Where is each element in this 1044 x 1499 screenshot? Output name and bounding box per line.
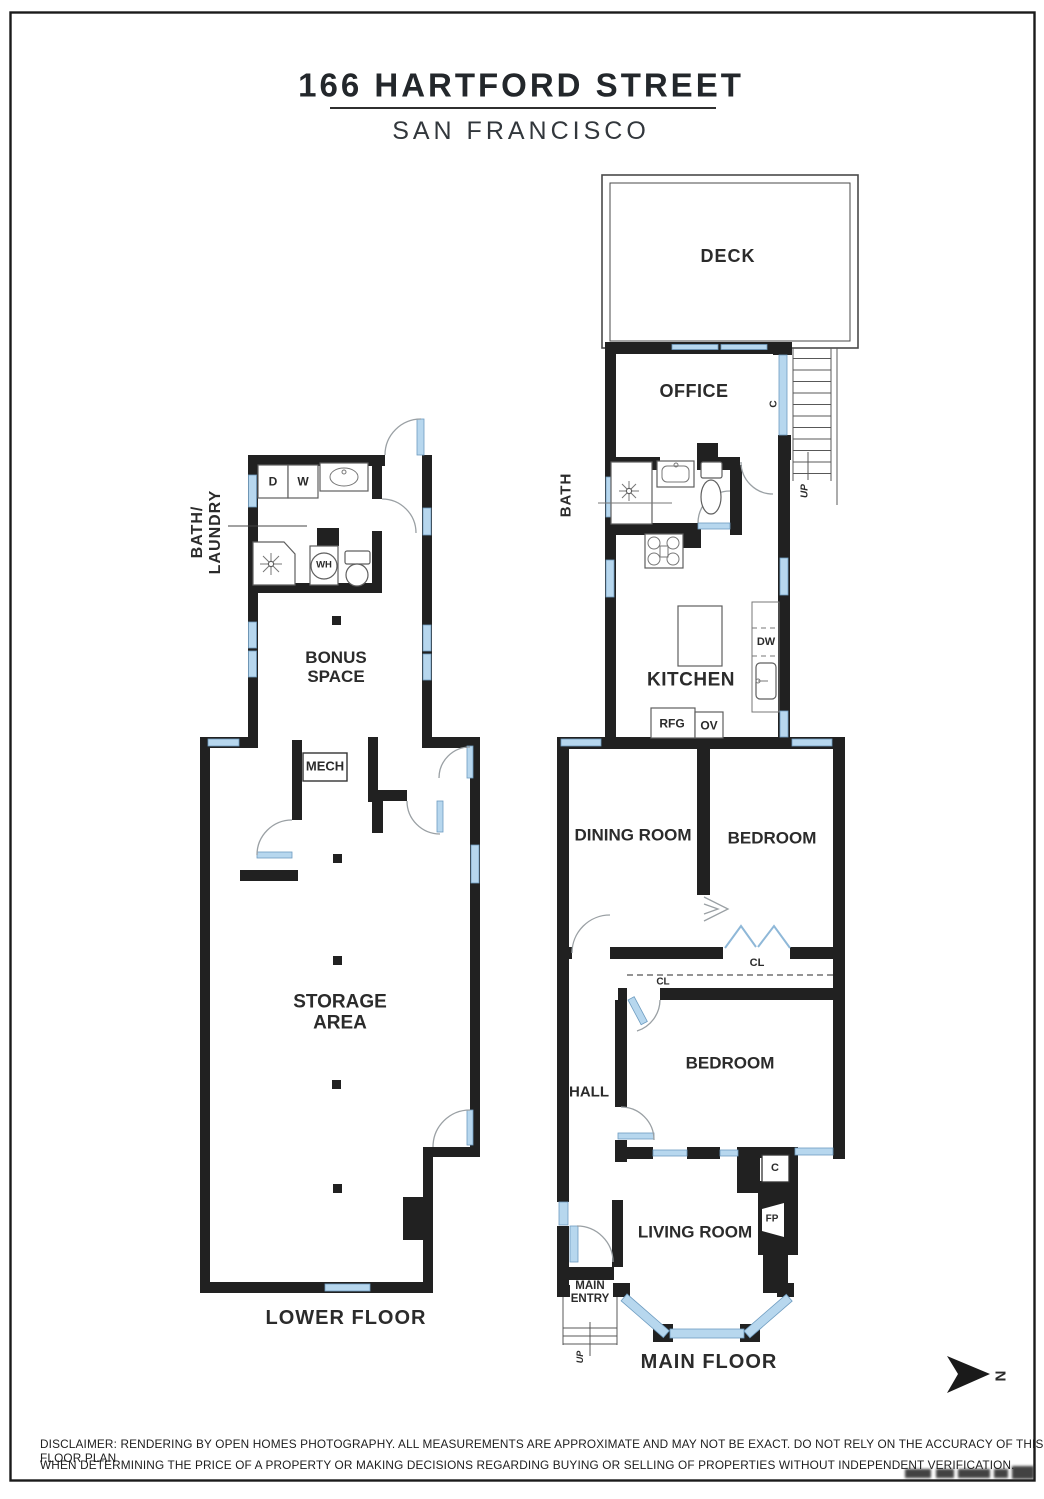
closet-label-rear: CL xyxy=(750,957,765,969)
storage-line2: AREA xyxy=(293,1013,387,1034)
post-column xyxy=(332,616,341,625)
room-label-dining-room: DINING ROOM xyxy=(574,825,691,844)
room-label-bonus-space: BONUS SPACE xyxy=(305,648,366,686)
main-entry-line2: ENTRY xyxy=(571,1293,610,1306)
closet-door-symbols xyxy=(627,897,833,975)
lower-floor-plan xyxy=(200,419,480,1293)
appliance-label-dryer: D xyxy=(269,475,278,488)
storage-line1: STORAGE xyxy=(293,992,387,1013)
room-label-mech: MECH xyxy=(306,760,344,775)
closet-label-hall: CL xyxy=(656,976,669,987)
room-label-main-entry: MAIN ENTRY xyxy=(571,1280,610,1306)
laundry-flue xyxy=(317,528,339,546)
appliance-label-ov: OV xyxy=(700,719,717,732)
post-column xyxy=(333,854,342,863)
lower-floor-door-arcs xyxy=(257,419,470,1147)
kitchen-sink-icon xyxy=(756,663,776,699)
title-divider xyxy=(330,107,716,109)
compass-north-label: N xyxy=(991,1371,1008,1382)
main-floor-fixtures xyxy=(598,461,789,1237)
chimney-bump xyxy=(403,1197,423,1240)
room-label-bedroom-front: BEDROOM xyxy=(686,1053,775,1072)
page-border xyxy=(11,13,1035,1481)
shower-icon-lower xyxy=(253,542,295,585)
stove-icon xyxy=(645,534,683,568)
room-label-deck: DECK xyxy=(700,246,755,266)
lower-floor-walls xyxy=(200,455,480,1293)
room-label-office: OFFICE xyxy=(660,381,729,401)
appliance-label-washer: W xyxy=(297,475,308,488)
page-subtitle: SAN FRANCISCO xyxy=(392,117,650,145)
post-column xyxy=(332,1080,341,1089)
main-entry-line1: MAIN xyxy=(571,1280,610,1293)
bonus-line2: SPACE xyxy=(305,667,366,686)
appliance-label-dw: DW xyxy=(757,636,775,648)
floor-label-main: MAIN FLOOR xyxy=(641,1351,778,1373)
page-title: 166 HARTFORD STREET xyxy=(298,68,744,105)
stairs-up-label: UP xyxy=(799,484,810,498)
floor-label-lower: LOWER FLOOR xyxy=(266,1307,427,1329)
floorplan-canvas xyxy=(0,0,1044,1499)
disclaimer-line2: WHEN DETERMINING THE PRICE OF A PROPERTY… xyxy=(40,1458,1015,1472)
floor-plan-page: 166 HARTFORD STREET SAN FRANCISCO DECK O… xyxy=(0,0,1044,1499)
closet-label-office: C xyxy=(768,400,779,407)
bath-laundry-line1: BATH/ xyxy=(189,490,207,575)
kitchen-island xyxy=(678,606,722,666)
appliance-label-rfg: RFG xyxy=(659,717,684,730)
post-column xyxy=(333,1184,342,1193)
bath-sink-icon xyxy=(657,461,694,487)
bonus-line1: BONUS xyxy=(305,648,366,667)
post-column xyxy=(333,956,342,965)
closet-label-living: C xyxy=(771,1162,779,1174)
room-label-kitchen: KITCHEN xyxy=(647,669,735,690)
room-label-hall: HALL xyxy=(569,1085,609,1102)
bath-laundry-line2: LAUNDRY xyxy=(207,490,225,575)
main-floor-plan xyxy=(557,175,858,1356)
room-label-living-room: LIVING ROOM xyxy=(638,1222,752,1241)
room-label-bedroom-rear: BEDROOM xyxy=(728,828,817,847)
laundry-sink-icon xyxy=(320,463,368,491)
room-label-bath: BATH xyxy=(559,473,576,518)
toilet-icon-lower xyxy=(345,551,370,586)
room-label-storage-area: STORAGE AREA xyxy=(293,992,387,1035)
entry-up-label: UP xyxy=(575,1351,585,1364)
stairs-icon-office xyxy=(793,348,837,505)
main-floor-door-arcs xyxy=(572,462,773,1262)
fireplace-label: FP xyxy=(766,1213,779,1224)
room-label-bath-laundry: BATH/ LAUNDRY xyxy=(189,490,225,575)
north-arrow-icon xyxy=(947,1356,990,1393)
water-heater-label: WH xyxy=(316,561,332,572)
toilet-icon-main xyxy=(701,462,722,514)
